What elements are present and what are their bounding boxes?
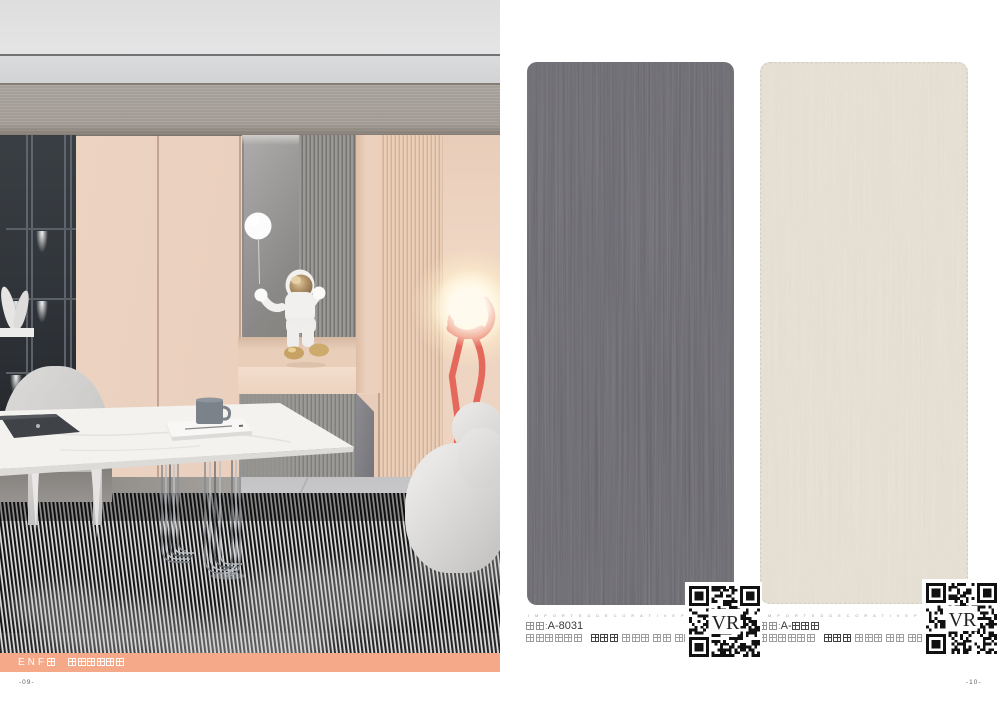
svg-text:VR: VR (712, 612, 740, 634)
svg-text:VR: VR (949, 609, 977, 631)
